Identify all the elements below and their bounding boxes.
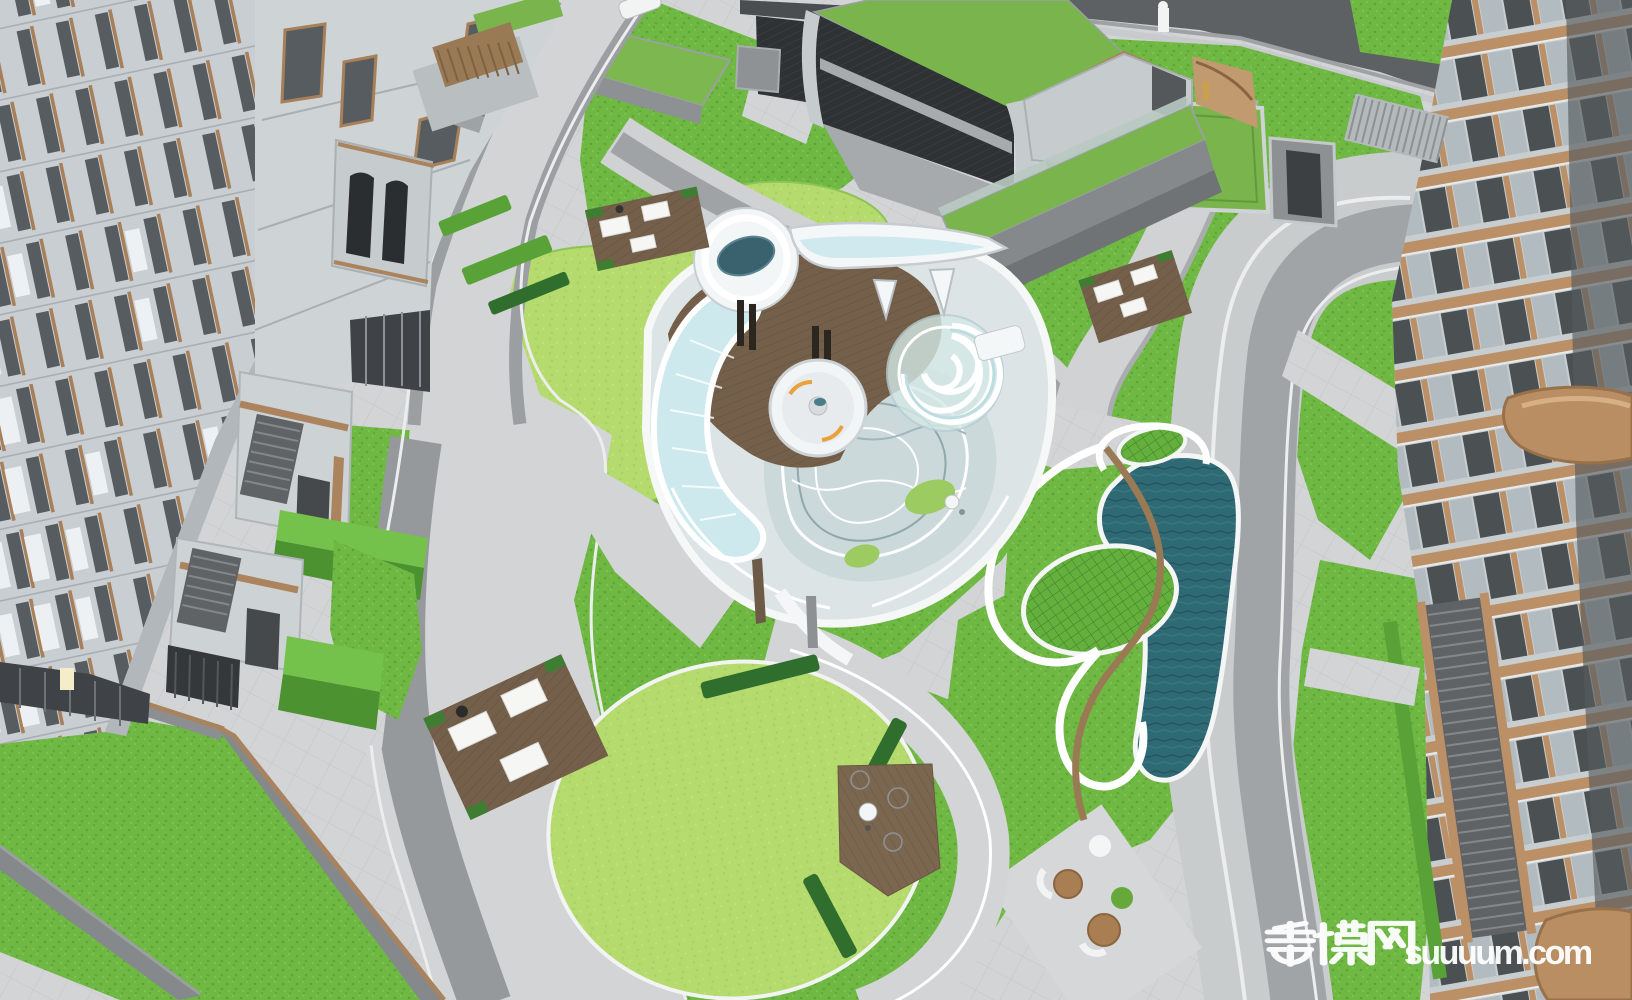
svg-text:suuuum.com: suuuum.com	[1404, 934, 1592, 972]
